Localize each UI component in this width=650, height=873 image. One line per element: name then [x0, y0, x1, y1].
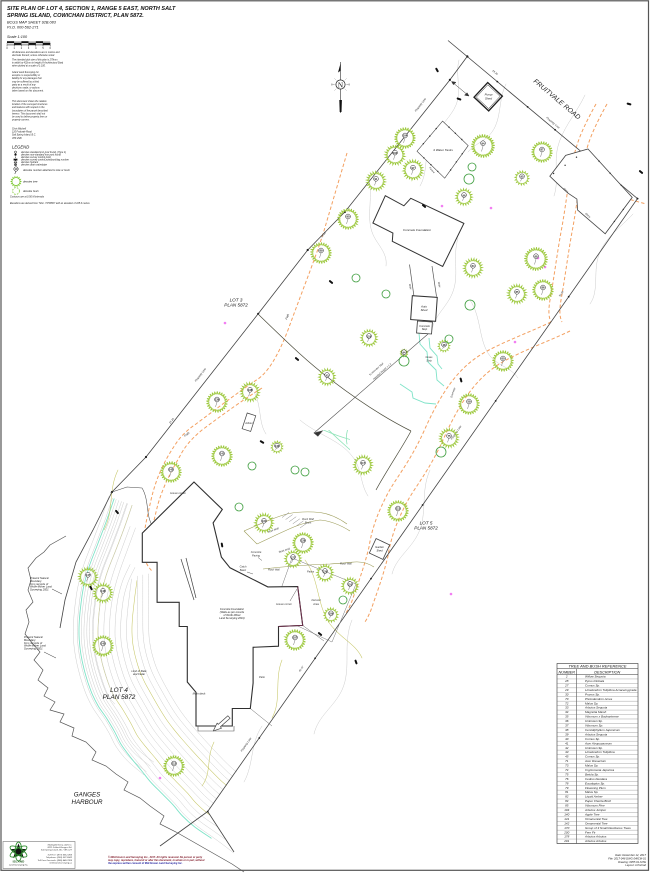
- svg-text:45: 45: [565, 755, 569, 759]
- svg-text:201: 201: [563, 839, 569, 843]
- svg-text:43: 43: [565, 750, 569, 754]
- svg-text:71: 71: [565, 759, 569, 763]
- svg-text:PLAN 5872: PLAN 5872: [103, 694, 136, 701]
- svg-text:SPRING ISLAND, COWICHAN DISTRI: SPRING ISLAND, COWICHAN DISTRICT, PLAN 5…: [7, 13, 144, 19]
- svg-text:Flowering Plum: Flowering Plum: [585, 786, 606, 790]
- svg-text:75: 75: [448, 434, 451, 438]
- svg-text:Stairs: Stairs: [305, 520, 312, 524]
- svg-text:126: 126: [323, 569, 328, 573]
- svg-text:Rock Wall: Rock Wall: [340, 562, 352, 566]
- svg-text:location of the surveyed struc: location of the surveyed structures: [12, 103, 48, 106]
- svg-text:91: 91: [375, 177, 378, 181]
- svg-text:118: 118: [367, 334, 372, 338]
- svg-text:Surveying 2001: Surveying 2001: [24, 647, 43, 651]
- svg-text:82: 82: [565, 795, 569, 799]
- svg-text:Grass: Grass: [426, 355, 434, 359]
- svg-text:in width by 432mm in height (A: in width by 432mm in height (A Architect…: [12, 62, 63, 65]
- svg-text:when plotted at a scale of 1:1: when plotted at a scale of 1:100.: [12, 65, 46, 68]
- svg-text:Main deck: Main deck: [193, 692, 206, 696]
- svg-text:147: 147: [86, 573, 91, 577]
- svg-text:27: 27: [564, 684, 569, 688]
- svg-text:Rock Wall: Rock Wall: [302, 517, 314, 521]
- svg-text:Group of 3 Small Deciduous Tre: Group of 3 Small Deciduous Trees: [585, 826, 631, 830]
- svg-text:142: 142: [169, 468, 174, 472]
- svg-text:Island Land Surveying Inc.: Island Land Surveying Inc.: [12, 72, 40, 74]
- svg-text:Viburnum x Bodnantense: Viburnum x Bodnantense: [585, 715, 619, 719]
- svg-text:All distances and elevations a: All distances and elevations are in metr…: [11, 51, 60, 54]
- svg-text:33: 33: [565, 706, 569, 710]
- svg-text:Layout: A Portrait: Layout: A Portrait: [625, 863, 646, 867]
- svg-text:Arbour: Arbour: [244, 422, 253, 425]
- svg-text:N: N: [338, 81, 344, 89]
- svg-text:40: 40: [565, 737, 569, 741]
- svg-text:41: 41: [565, 741, 569, 745]
- svg-text:liability for any damages that: liability for any damages that: [12, 77, 42, 80]
- svg-text:may be suffered by a third: may be suffered by a third: [12, 80, 40, 83]
- svg-text:110: 110: [348, 582, 353, 586]
- svg-text:93: 93: [326, 373, 329, 377]
- svg-text:denotes bush: denotes bush: [23, 189, 39, 193]
- svg-text:84: 84: [565, 799, 569, 803]
- svg-text:Paper Cherita Birch: Paper Cherita Birch: [585, 799, 612, 803]
- svg-text:Photodendron Acres: Photodendron Acres: [585, 697, 613, 701]
- svg-text:Contours are at 0.50 M interva: Contours are at 0.50 M intervals: [10, 196, 45, 199]
- svg-text:120 Fruitvale Road: 120 Fruitvale Road: [12, 131, 32, 134]
- svg-text:Ornamental Tree: Ornamental Tree: [585, 817, 608, 821]
- svg-text:Acer Dissectum: Acer Dissectum: [584, 759, 607, 763]
- svg-text:170: 170: [564, 826, 569, 830]
- svg-text:129: 129: [301, 539, 306, 543]
- svg-text:86: 86: [542, 286, 545, 290]
- svg-text:Scale 1:100: Scale 1:100: [7, 35, 28, 39]
- svg-text:48: 48: [443, 343, 446, 347]
- svg-text:4 Water Tanks: 4 Water Tanks: [433, 148, 453, 152]
- svg-text:P.I.D. 000-562-271: P.I.D. 000-562-271: [7, 26, 39, 30]
- svg-text:decimals thereof, unless other: decimals thereof, unless otherwise noted…: [12, 54, 55, 57]
- svg-text:Arbutus Sequoia: Arbutus Sequoia: [584, 732, 608, 736]
- svg-text:Unknown Sp.: Unknown Sp.: [585, 719, 603, 723]
- svg-text:Acer Atropurpureum: Acer Atropurpureum: [584, 741, 612, 745]
- svg-text:Fenced: Fenced: [312, 598, 321, 602]
- svg-text:28: 28: [564, 679, 569, 683]
- svg-text:34: 34: [565, 710, 569, 714]
- svg-text:Eucalyptus Sp.: Eucalyptus Sp.: [585, 781, 605, 785]
- svg-text:139: 139: [215, 398, 220, 402]
- svg-text:59: 59: [468, 400, 471, 404]
- svg-text:73: 73: [565, 764, 569, 768]
- svg-text:85: 85: [516, 290, 519, 294]
- svg-text:Arbutus Arbutus: Arbutus Arbutus: [584, 839, 607, 843]
- svg-text:Viburnum Sp.: Viburnum Sp.: [585, 724, 603, 728]
- svg-text:Ornamental Tree: Ornamental Tree: [585, 821, 608, 825]
- svg-text:Land Surveying Inc.: Land Surveying Inc.: [9, 865, 29, 867]
- svg-text:35: 35: [565, 715, 569, 719]
- svg-text:LOT 4: LOT 4: [110, 687, 128, 694]
- svg-text:76: 76: [565, 777, 569, 781]
- svg-text:Malus Sp.: Malus Sp.: [585, 790, 599, 794]
- svg-text:Concrete: Concrete: [251, 550, 262, 554]
- svg-text:104: 104: [564, 808, 569, 812]
- svg-text:Area: Area: [312, 602, 319, 606]
- svg-text:96: 96: [463, 193, 466, 197]
- svg-text:Betula Sp.: Betula Sp.: [585, 772, 599, 776]
- svg-text:131: 131: [262, 519, 267, 523]
- svg-text:Toll Free Facsimile: (866) 448: Toll Free Facsimile: (866) 448-7269: [38, 859, 73, 862]
- svg-text:denotes tree: denotes tree: [23, 180, 38, 184]
- svg-text:70: 70: [565, 697, 569, 701]
- svg-text:BCGS MAP SHEET 92B.083: BCGS MAP SHEET 92B.083: [7, 21, 57, 25]
- svg-text:94: 94: [403, 350, 406, 354]
- svg-text:140: 140: [564, 812, 569, 816]
- svg-text:House corner: House corner: [276, 602, 292, 606]
- svg-text:Liriodendron Tulipifera Acrace: Liriodendron Tulipifera Acracemygrada: [585, 688, 637, 692]
- svg-text:Paving: Paving: [252, 553, 260, 557]
- svg-text:Cryptomeria Japonica: Cryptomeria Japonica: [585, 768, 615, 772]
- svg-text:Salt Spring Island, B.C.: Salt Spring Island, B.C.: [12, 134, 36, 137]
- svg-text:2: 2: [565, 675, 568, 679]
- svg-text:145: 145: [101, 642, 106, 646]
- svg-text:42: 42: [565, 746, 569, 750]
- svg-text:Drawing: 0955 01-SITE: Drawing: 0955 01-SITE: [618, 860, 646, 864]
- svg-text:29: 29: [564, 688, 569, 692]
- svg-text:Concrete: Concrete: [419, 324, 430, 328]
- svg-text:Malus Sp.: Malus Sp.: [585, 764, 599, 768]
- svg-text:200: 200: [563, 830, 569, 834]
- svg-text:Garden: Garden: [375, 545, 384, 549]
- svg-text:60: 60: [502, 357, 505, 361]
- svg-text:78: 78: [565, 781, 569, 785]
- svg-text:property corners.: property corners.: [11, 119, 30, 122]
- svg-text:Pyrus trilobata: Pyrus trilobata: [585, 679, 605, 683]
- svg-text:Prunus Sp.: Prunus Sp.: [585, 692, 600, 696]
- svg-text:Cornus Sp.: Cornus Sp.: [585, 755, 600, 759]
- svg-text:Malus Sp.: Malus Sp.: [585, 701, 599, 705]
- svg-text:Cercidiphyllum Japonicum: Cercidiphyllum Japonicum: [585, 728, 621, 732]
- svg-text:Unknown Sp.: Unknown Sp.: [585, 746, 603, 750]
- svg-text:79: 79: [565, 786, 569, 790]
- svg-text:HARBOUR: HARBOUR: [72, 799, 103, 806]
- svg-text:72: 72: [565, 701, 569, 705]
- svg-text:ISLAND: ISLAND: [13, 859, 25, 863]
- svg-text:Arbutus Sequoia: Arbutus Sequoia: [584, 706, 608, 710]
- svg-text:denotes drain valve/pipe: denotes drain valve/pipe: [21, 164, 48, 167]
- svg-text:141: 141: [564, 817, 569, 821]
- svg-text:and Cedar: and Cedar: [133, 672, 145, 676]
- svg-text:PLAN 5872: PLAN 5872: [224, 303, 248, 308]
- svg-text:Basin: Basin: [240, 568, 247, 572]
- svg-text:Patios: Patios: [307, 570, 315, 574]
- svg-text:30: 30: [565, 692, 569, 696]
- svg-text:Cedrus Deodara: Cedrus Deodara: [585, 777, 607, 781]
- svg-text:mt@islandsurveying.ca: mt@islandsurveying.ca: [49, 861, 72, 864]
- svg-text:117: 117: [361, 461, 366, 465]
- svg-text:103: 103: [393, 151, 398, 155]
- svg-text:This document shows the relati: This document shows the relative: [12, 100, 47, 103]
- svg-text:Viburnum Pine: Viburnum Pine: [585, 804, 605, 808]
- svg-text:138: 138: [248, 388, 253, 392]
- svg-text:89: 89: [320, 249, 323, 253]
- svg-text:Arbutus Juniper: Arbutus Juniper: [584, 808, 607, 812]
- svg-text:95: 95: [521, 175, 524, 179]
- svg-text:94: 94: [482, 141, 485, 145]
- svg-text:Salt Spring Island, BC, V8K 1Z: Salt Spring Island, BC, V8K 1Z7: [41, 849, 73, 852]
- svg-text:Magnolia Marsh: Magnolia Marsh: [585, 710, 607, 714]
- svg-text:decisions made, or actions: decisions made, or actions: [12, 87, 40, 90]
- svg-text:SITE PLAN OF LOT 4, SECTION 1: SITE PLAN OF LOT 4, SECTION 1, RANGE 5 E…: [7, 6, 176, 12]
- svg-text:Cornus Sp.: Cornus Sp.: [585, 737, 600, 741]
- svg-text:Strip: Strip: [426, 358, 432, 362]
- svg-text:88: 88: [535, 254, 538, 258]
- svg-text:House corner: House corner: [170, 491, 186, 495]
- svg-text:Fern Fir: Fern Fir: [585, 830, 597, 834]
- svg-text:178: 178: [564, 835, 569, 839]
- svg-text:boundaries of the parcel descr: boundaries of the parcel described: [12, 109, 48, 112]
- svg-text:Apple Tree: Apple Tree: [584, 812, 600, 816]
- svg-text:107: 107: [293, 636, 298, 640]
- svg-text:be used to define property lin: be used to define property lines or: [12, 116, 47, 119]
- svg-text:81: 81: [565, 790, 569, 794]
- svg-text:97: 97: [412, 166, 415, 170]
- svg-text:87: 87: [541, 148, 544, 152]
- svg-text:TREE AND BUSH REFERENCE: TREE AND BUSH REFERENCE: [568, 664, 626, 669]
- svg-text:V8K 2M9: V8K 2M9: [12, 138, 22, 140]
- svg-text:Shed: Shed: [485, 96, 492, 100]
- svg-text:File: 2017-048 DWG 048CM-01: File: 2017-048 DWG 048CM-01: [608, 856, 646, 860]
- svg-text:Rock Wall: Rock Wall: [268, 568, 280, 572]
- svg-text:142: 142: [564, 821, 569, 825]
- svg-text:taken based on this document.: taken based on this document.: [12, 90, 44, 93]
- svg-text:Patio: Patio: [259, 675, 265, 679]
- svg-text:Liriodendron Tulipifera: Liriodendron Tulipifera: [585, 750, 615, 754]
- svg-text:Surveying 2001: Surveying 2001: [30, 588, 49, 592]
- svg-text:75: 75: [565, 772, 569, 776]
- svg-text:the express written consent of: the express written consent of Mitchinso…: [108, 862, 183, 865]
- svg-text:127: 127: [291, 555, 296, 559]
- svg-text:141: 141: [220, 452, 225, 456]
- svg-text:The intended plot size of this: The intended plot size of this plan is 2…: [12, 59, 57, 62]
- svg-text:Arbutus Arbutus: Arbutus Arbutus: [584, 835, 607, 839]
- svg-text:36: 36: [565, 719, 569, 723]
- svg-text:Willow Sequoia: Willow Sequoia: [585, 675, 606, 679]
- svg-text:party as a result of any: party as a result of any: [11, 83, 36, 86]
- svg-text:Shed: Shed: [421, 308, 428, 312]
- svg-text:Shed: Shed: [376, 548, 383, 552]
- svg-text:Concrete Foundation: Concrete Foundation: [403, 228, 431, 232]
- svg-text:Step: Step: [422, 327, 428, 331]
- svg-text:denotes number attached to tre: denotes number attached to tree or bush: [23, 168, 70, 172]
- svg-text:37: 37: [565, 724, 569, 728]
- svg-text:Cornus Sp.: Cornus Sp.: [585, 684, 600, 688]
- svg-text:113: 113: [396, 507, 401, 511]
- svg-text:and features with respect to t: and features with respect to the: [12, 106, 45, 109]
- svg-text:hereon. This document shall n: hereon. This document shall not: [12, 112, 45, 115]
- svg-text:Liquid Amber: Liquid Amber: [585, 795, 604, 799]
- svg-text:84: 84: [472, 264, 475, 268]
- svg-text:accepts no responsibility or: accepts no responsibility or: [12, 74, 40, 77]
- svg-text:Chris Mitchell: Chris Mitchell: [12, 128, 26, 131]
- svg-text:Land Surveying 2001): Land Surveying 2001): [219, 616, 245, 620]
- svg-text:Elevations are derived from "M: Elevations are derived from "Mon. 73H453…: [10, 202, 90, 205]
- svg-text:Date: December 12, 2017: Date: December 12, 2017: [615, 853, 646, 857]
- svg-text:104: 104: [403, 134, 408, 138]
- svg-text:LEGEND: LEGEND: [12, 145, 29, 150]
- svg-text:39: 39: [565, 732, 569, 736]
- svg-text:112: 112: [172, 762, 177, 766]
- svg-text:85: 85: [565, 804, 569, 808]
- svg-text:109: 109: [329, 612, 334, 616]
- svg-text:PLAN 5872: PLAN 5872: [414, 526, 438, 531]
- svg-text:90: 90: [347, 215, 350, 219]
- svg-text:38: 38: [565, 728, 569, 732]
- svg-text:74: 74: [565, 768, 569, 772]
- svg-text:Catch: Catch: [240, 565, 247, 569]
- svg-text:GANGES: GANGES: [74, 792, 101, 799]
- svg-text:140: 140: [275, 444, 280, 448]
- svg-text:146: 146: [101, 589, 106, 593]
